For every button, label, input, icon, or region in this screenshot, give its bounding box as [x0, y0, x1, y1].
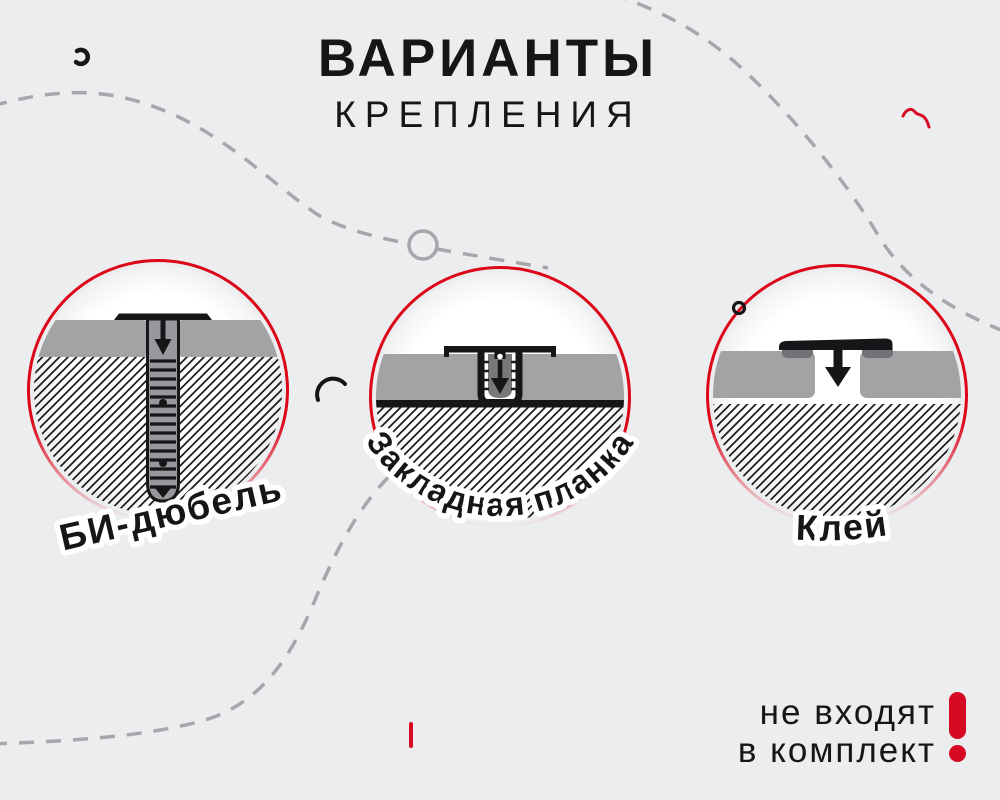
decorative-marks: [0, 0, 1000, 800]
paren-arc-icon: [317, 379, 345, 400]
small-ring-icon: [734, 303, 745, 314]
infographic-canvas: ВАРИАНТЫ КРЕПЛЕНИЯ: [0, 0, 1000, 800]
